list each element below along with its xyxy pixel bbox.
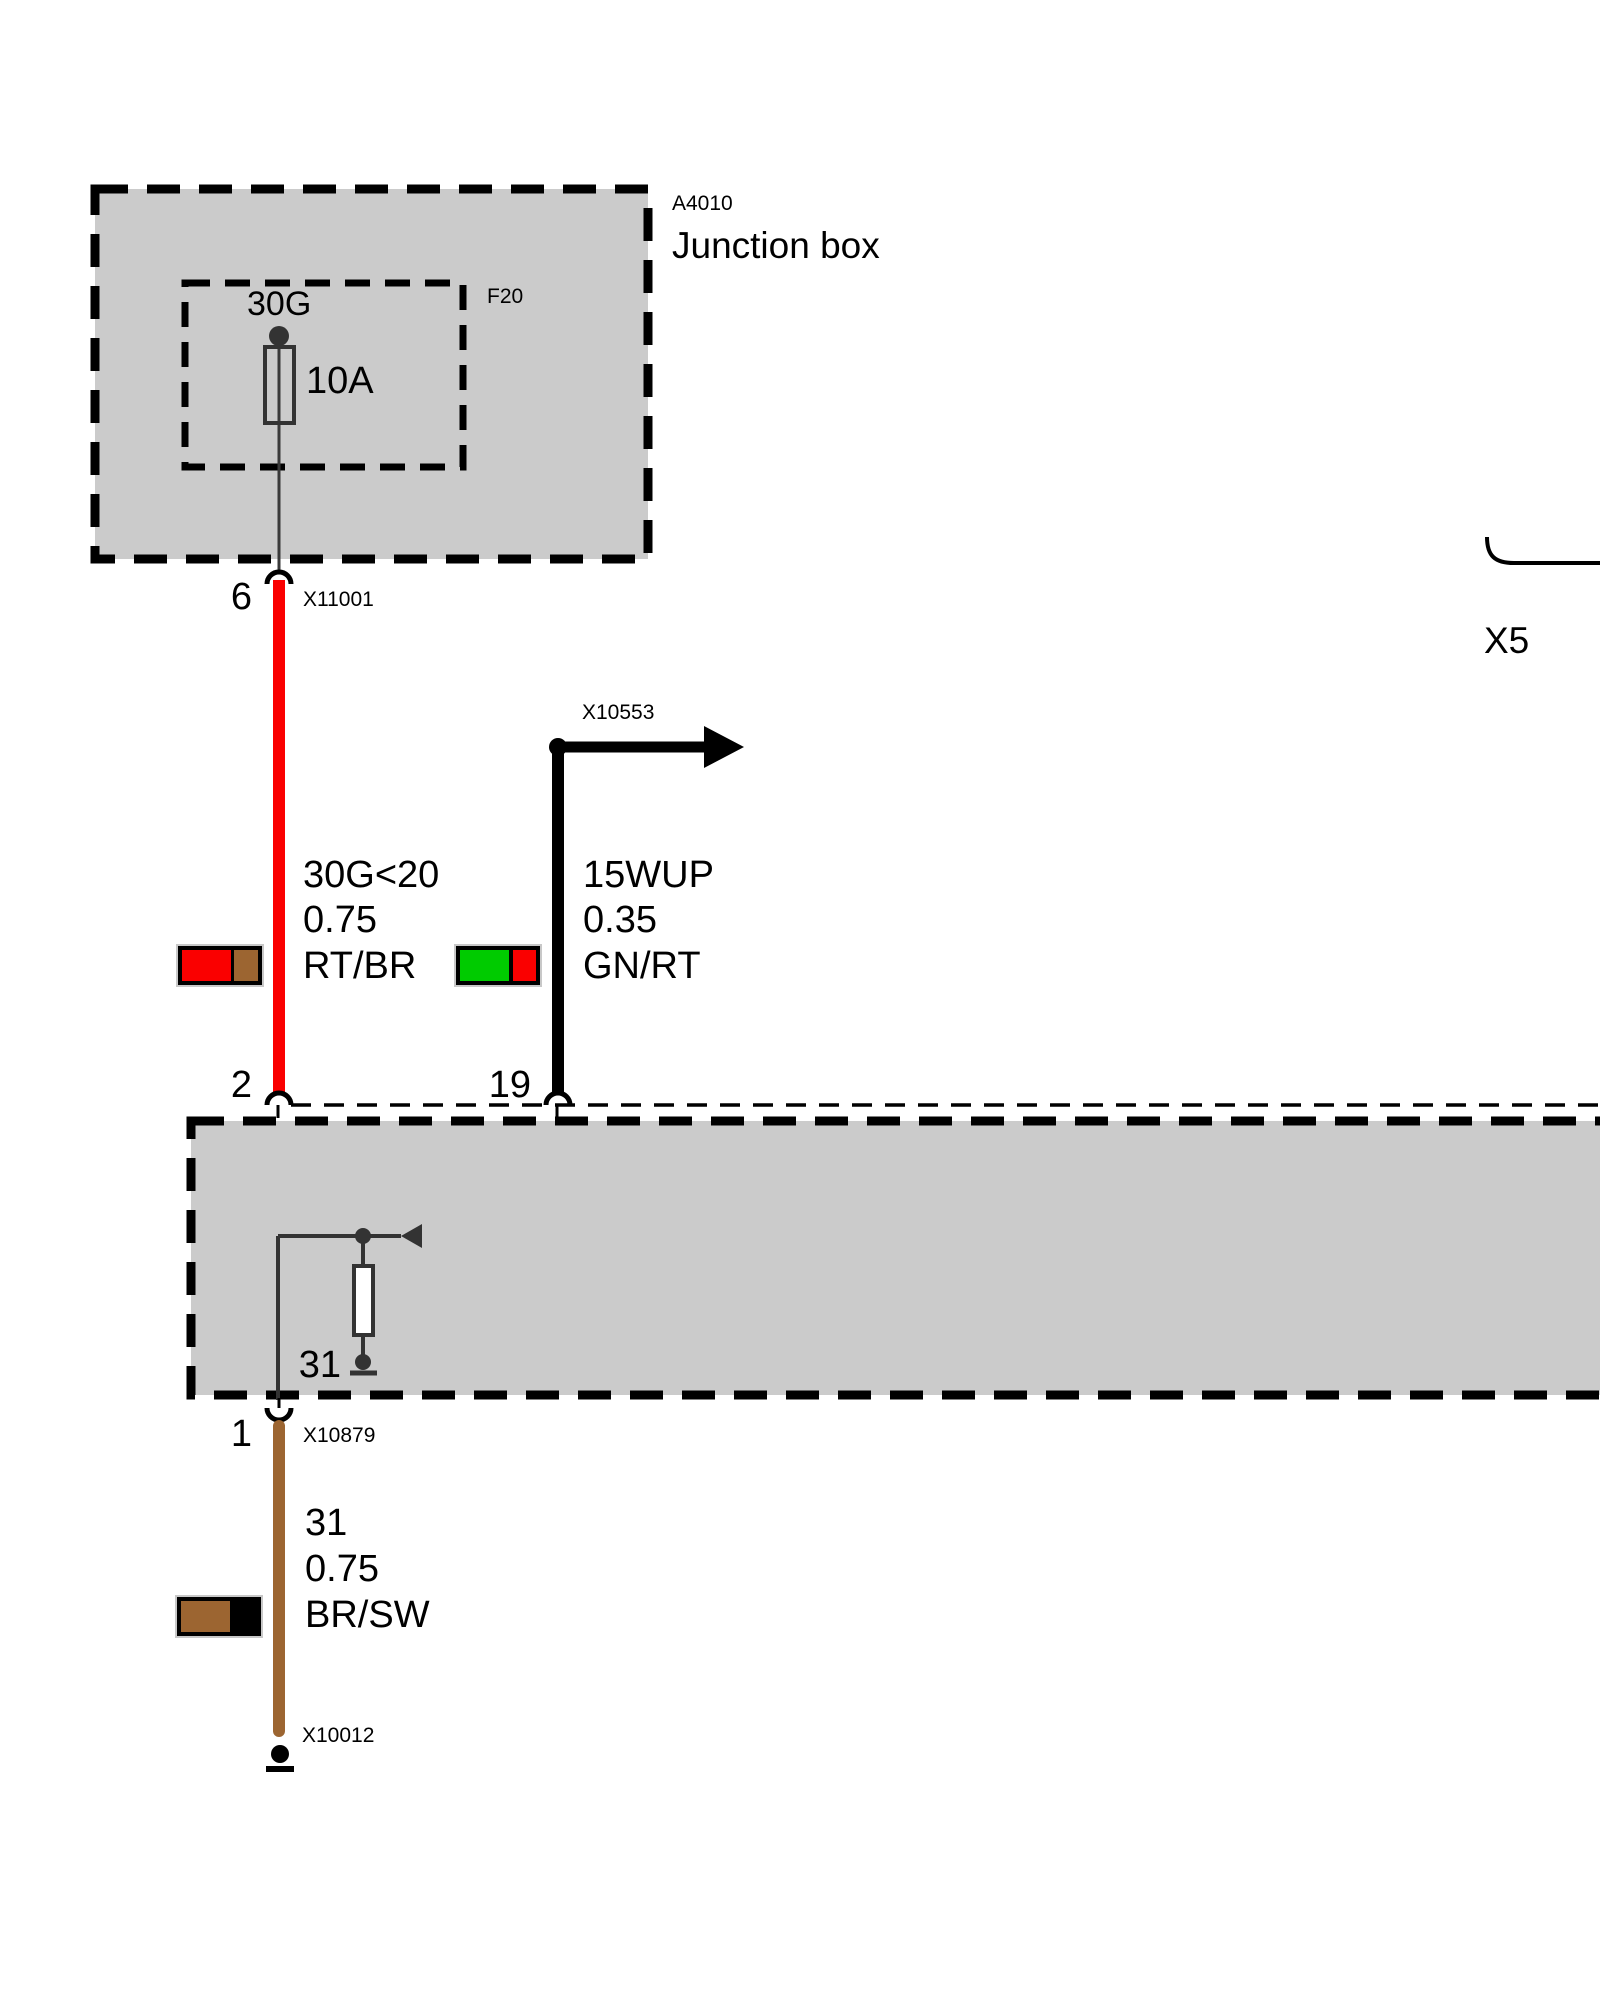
pin-number-6: 6	[231, 576, 252, 618]
connector-id-x5: X5	[1484, 620, 1529, 661]
internal-ground-label: 31	[299, 1344, 341, 1386]
pin-number-2: 2	[231, 1064, 252, 1106]
wire-power-color-swatch	[177, 945, 263, 986]
x5-bracket-line	[1487, 537, 1600, 563]
internal-ground-dot	[355, 1354, 371, 1370]
pin-number-1: 1	[231, 1413, 252, 1455]
junction-box: A4010 Junction box F20 30G 10A	[95, 189, 880, 570]
wire-label-signal: 15WUP 0.35 GN/RT	[455, 854, 714, 987]
swatch-brown	[234, 950, 258, 981]
connector-id-x11001: X11001	[303, 588, 374, 611]
connector-x10879: 1 X10879	[231, 1398, 376, 1455]
wire-signal-color-code: GN/RT	[583, 945, 701, 987]
fuse-rating-label: 10A	[306, 360, 374, 402]
wire-label-ground: 31 0.75 BR/SW	[176, 1502, 430, 1637]
socket-arc-icon	[546, 1093, 570, 1105]
wiring-diagram: A4010 Junction box F20 30G 10A 6 X11001 …	[0, 0, 1600, 2000]
connector-x5: X5	[1484, 537, 1600, 661]
wire-signal-circuit: 15WUP	[583, 854, 714, 896]
wire-ground-size: 0.75	[305, 1548, 379, 1590]
fuse-terminal-dot	[269, 326, 289, 346]
ground-dot-icon	[271, 1745, 289, 1763]
wire-ground-circuit: 31	[305, 1502, 347, 1544]
pin-number-19: 19	[489, 1064, 531, 1106]
fuse-id: F20	[487, 285, 523, 308]
wire-ground-color-swatch	[176, 1596, 262, 1637]
wiring-diagram-page: A4010 Junction box F20 30G 10A 6 X11001 …	[0, 0, 1600, 2000]
swatch-red	[182, 950, 231, 981]
branch-arrow-head-icon	[704, 726, 744, 768]
fuse-circuit-label: 30G	[247, 285, 311, 323]
wire-signal-color-swatch	[455, 945, 541, 986]
connector-id-x10879: X10879	[303, 1424, 375, 1447]
wire-ground-color-code: BR/SW	[305, 1594, 430, 1636]
swatch-red	[513, 950, 536, 981]
socket-arc-icon	[267, 1093, 291, 1105]
resistor-symbol	[354, 1266, 373, 1335]
junction-box-id: A4010	[672, 192, 733, 215]
control-module-box: 31	[191, 1121, 1600, 1400]
socket-arc-icon	[267, 1408, 291, 1420]
branch-x10553: X10553	[549, 701, 744, 1094]
wire-power-size: 0.75	[303, 899, 377, 941]
module-connector-row: 2 19	[231, 1064, 1600, 1118]
wire-power-color-code: RT/BR	[303, 945, 416, 987]
module-outline	[191, 1121, 1600, 1395]
wire-power-circuit: 30G<20	[303, 854, 439, 896]
connector-x11001: 6 X11001	[231, 572, 374, 618]
swatch-brown	[181, 1601, 230, 1632]
swatch-green	[460, 950, 509, 981]
connector-id-x10553: X10553	[582, 701, 654, 724]
wire-label-power: 30G<20 0.75 RT/BR	[177, 854, 439, 987]
wire-signal-size: 0.35	[583, 899, 657, 941]
connector-id-x10012: X10012	[302, 1724, 374, 1747]
junction-box-title: Junction box	[672, 225, 880, 266]
